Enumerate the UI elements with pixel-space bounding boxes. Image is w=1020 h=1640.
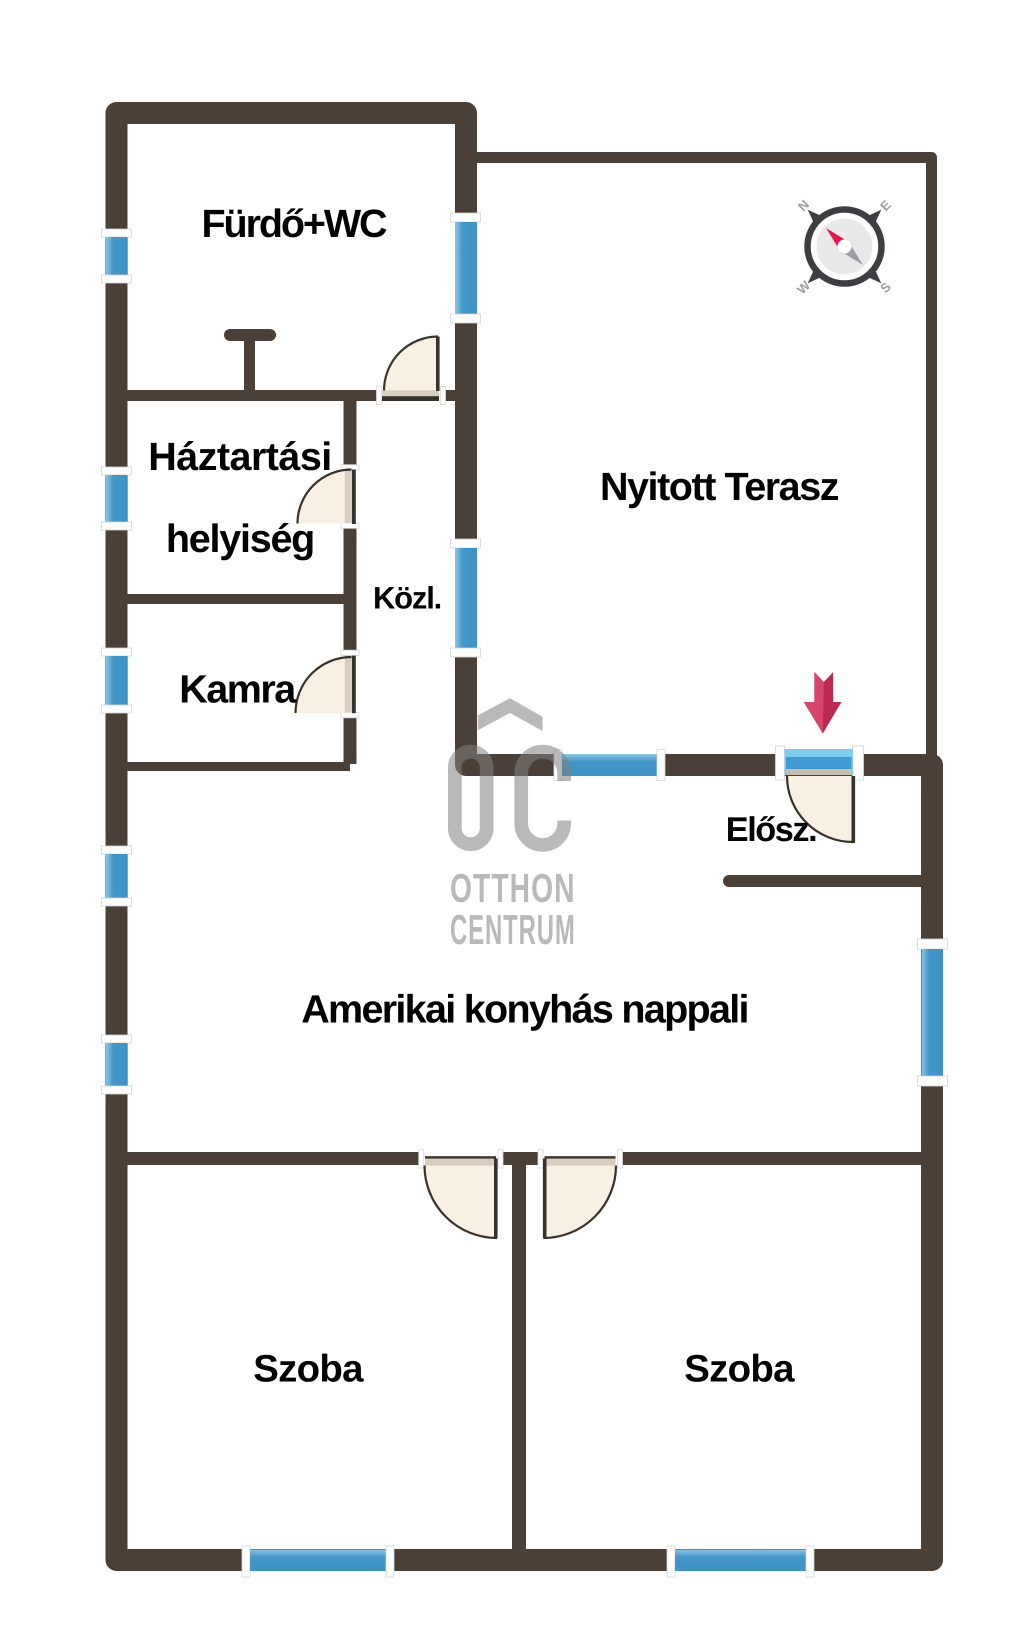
svg-text:Fürdő+WC: Fürdő+WC — [202, 202, 388, 246]
svg-text:Nyitott Terasz: Nyitott Terasz — [600, 465, 839, 509]
svg-text:Szoba: Szoba — [253, 1347, 364, 1390]
svg-text:CENTRUM: CENTRUM — [450, 906, 576, 953]
svg-text:OTTHON: OTTHON — [450, 865, 576, 911]
svg-text:Kamra: Kamra — [179, 668, 297, 712]
svg-text:Közl.: Közl. — [373, 581, 441, 616]
svg-text:Elősz.: Elősz. — [726, 811, 816, 849]
svg-text:Háztartási: Háztartási — [148, 435, 331, 479]
svg-text:helyiség: helyiség — [166, 517, 314, 561]
svg-text:Amerikai konyhás nappali: Amerikai konyhás nappali — [301, 988, 748, 1032]
svg-text:Szoba: Szoba — [684, 1347, 795, 1390]
